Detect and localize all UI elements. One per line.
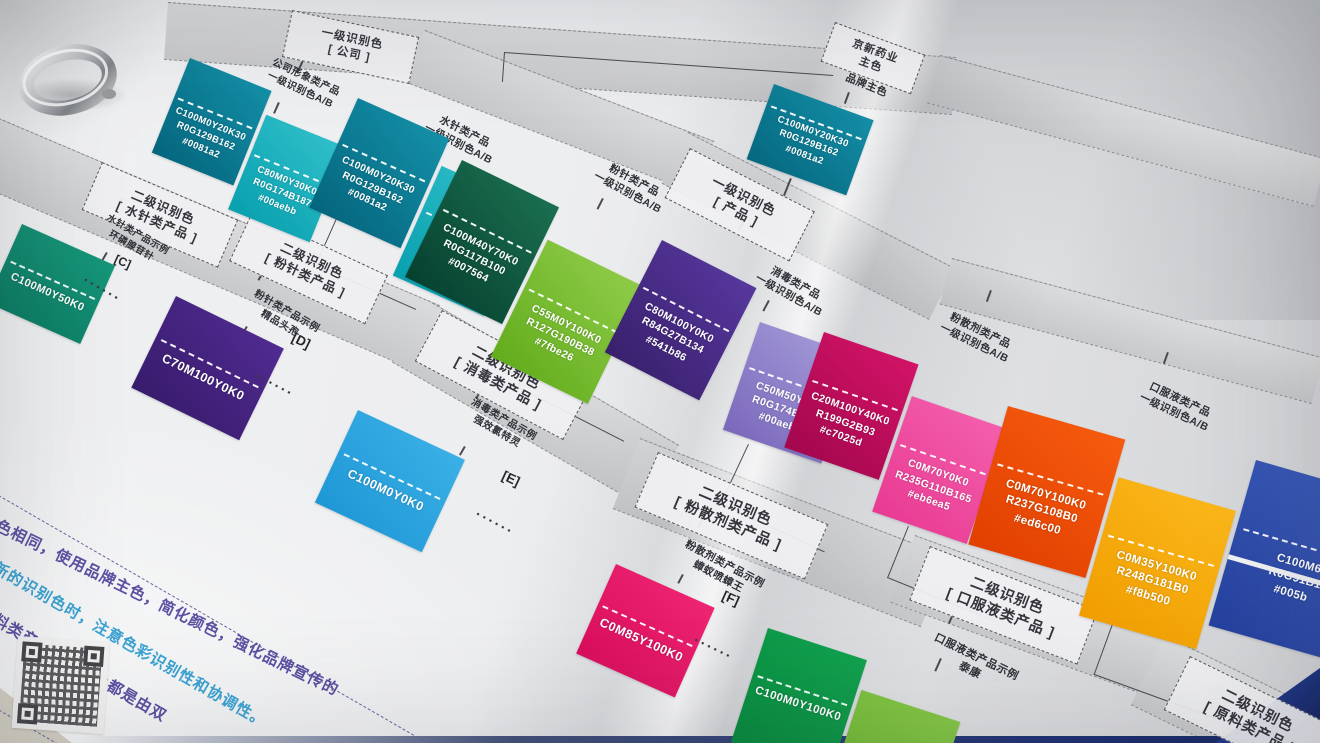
page-stack-edge [80,736,1320,743]
color-swatch: C100M6R0G91B1#005b [1209,460,1320,664]
binder-ring [6,32,136,137]
color-code: C0M70Y0K0R235G110B165#eb6ea5 [881,451,986,522]
connector-line [273,102,280,114]
color-code: C100M40Y70K0R0G117B100#007564 [419,216,531,300]
photographed-brand-color-guideline-spread: 一级识别色 [ 公司 ] 京新药业 主色 一级识别色 [ 产品 ] 二级识别色 … [0,0,1320,743]
qr-finder-pattern [83,646,104,667]
color-code: C100M0Y20K30R0G129B162#0081a2 [320,150,424,226]
color-code: C100M0Y20K30R0G129B162#0081a2 [159,103,252,170]
tag-c: [C] [112,252,133,272]
qr-finder-pattern [21,641,42,662]
qr-finder-pattern [17,703,38,724]
connector-line [597,198,604,210]
color-code: C0M70Y100K0R237G108B0#ed6c00 [979,472,1104,549]
color-code: C20M100Y40K0R199G2B93#c7025d [793,387,898,458]
color-code: C80M100Y0K0R84G27B134#541b86 [618,294,728,378]
color-code: C55M0Y100K0R127G190B38#7fbe26 [504,296,616,380]
color-code: C0M35Y100K0R248G181B0#f8b500 [1090,543,1215,620]
qr-code [12,636,110,734]
